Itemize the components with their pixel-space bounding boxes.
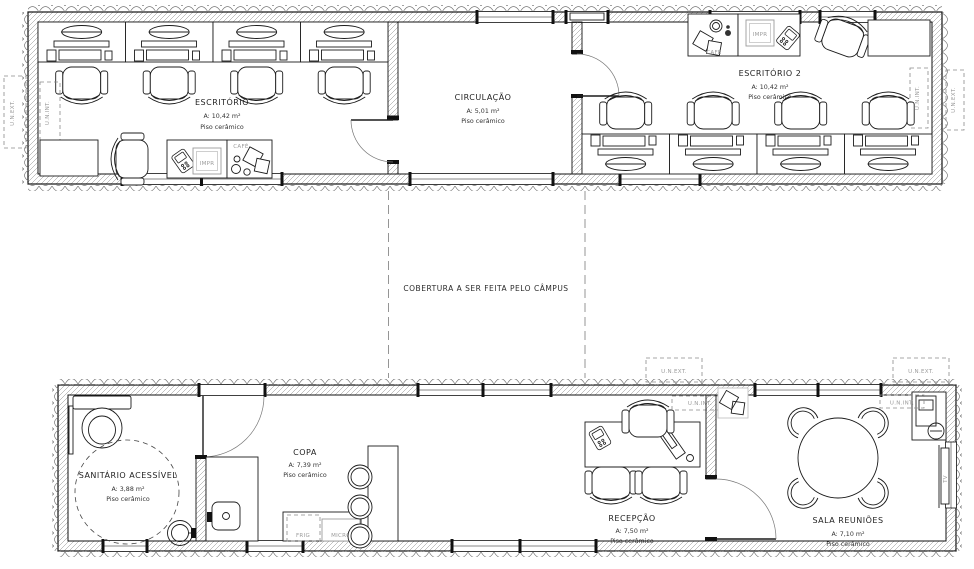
guest-chair bbox=[635, 467, 687, 504]
printer-table: IMPR bbox=[738, 14, 800, 56]
floor-plan-canvas: U.N.EXT. U.N.INT. IMPR CAFÉ ESCRITÓRIO A… bbox=[0, 0, 974, 569]
corrugation-bottom bbox=[58, 551, 956, 557]
copa-cabinet bbox=[206, 457, 258, 541]
wall-art bbox=[718, 388, 748, 418]
room-name: RECEPÇÃO bbox=[608, 513, 655, 523]
room-area: A: 10,42 m² bbox=[751, 84, 788, 91]
corrugation-bottom bbox=[28, 185, 942, 191]
fridge-label: FRIG bbox=[296, 533, 310, 539]
room-floor: Piso cerâmico bbox=[283, 471, 327, 479]
corrugation-top bbox=[28, 5, 942, 11]
window bbox=[417, 383, 553, 397]
entry-door-top bbox=[565, 10, 610, 24]
building-top: U.N.EXT. U.N.INT. IMPR CAFÉ ESCRITÓRIO A… bbox=[4, 5, 964, 191]
bar-stool bbox=[348, 495, 372, 519]
room-name: CIRCULAÇÃO bbox=[455, 92, 512, 102]
office-chair bbox=[111, 133, 148, 185]
cafe-table: CAFÉ bbox=[688, 14, 738, 56]
room-area: A: 7,10 m² bbox=[831, 531, 864, 538]
printer-label: IMPR bbox=[200, 161, 215, 167]
cover-note: COBERTURA A SER FEITA PELO CÂMPUS bbox=[403, 284, 568, 293]
equipment-desk bbox=[912, 392, 946, 440]
window bbox=[409, 172, 555, 186]
ac-outdoor-label: U.N.EXT. bbox=[661, 369, 687, 375]
building-bottom: U.N.EXT. U.N.EXT. bbox=[52, 358, 962, 557]
room-floor: Piso cerâmico bbox=[826, 540, 870, 548]
side-table bbox=[40, 140, 98, 176]
side-table bbox=[868, 20, 930, 56]
room-name: SALA REUNIÕES bbox=[812, 514, 883, 525]
grab-bar bbox=[69, 406, 73, 454]
bar-stool bbox=[348, 465, 372, 489]
office-chair bbox=[622, 400, 674, 437]
window bbox=[754, 383, 883, 397]
site-connector: COBERTURA A SER FEITA PELO CÂMPUS bbox=[389, 191, 586, 378]
guest-chair bbox=[585, 467, 637, 504]
room-name: SANITÁRIO ACESSÍVEL bbox=[79, 469, 178, 480]
room-floor: Piso cerâmico bbox=[461, 117, 505, 125]
cafe-label: CAFÉ bbox=[706, 48, 722, 56]
ac-outdoor-label: U.N.EXT. bbox=[951, 87, 957, 113]
window bbox=[451, 539, 598, 553]
bar-stool bbox=[348, 524, 372, 548]
corrugation-right bbox=[942, 12, 948, 184]
ac-outdoor-label: U.N.EXT. bbox=[908, 369, 934, 375]
room-area: A: 7,39 m² bbox=[288, 462, 321, 469]
room-name: COPA bbox=[293, 448, 317, 457]
floor-plan-drawing: U.N.EXT. U.N.INT. IMPR CAFÉ ESCRITÓRIO A… bbox=[0, 0, 974, 569]
round-meeting-table bbox=[798, 418, 878, 498]
room-area: A: 3,88 m² bbox=[111, 486, 144, 493]
ac-outdoor-label: U.N.EXT. bbox=[10, 100, 16, 126]
cafe-label: CAFÉ bbox=[233, 142, 249, 150]
ac-indoor-label: U.N.INT. bbox=[890, 401, 914, 407]
ac-indoor-label: U.N.INT. bbox=[45, 101, 51, 125]
washbasin bbox=[212, 502, 240, 530]
room-area: A: 5,01 m² bbox=[466, 108, 499, 115]
room-area: A: 7,50 m² bbox=[615, 528, 648, 535]
room-name: ESCRITÓRIO 2 bbox=[739, 67, 802, 78]
room-area: A: 10,42 m² bbox=[203, 113, 240, 120]
corrugation-left bbox=[52, 385, 58, 551]
printer-label: IMPR bbox=[753, 32, 768, 38]
bar-counter bbox=[368, 446, 398, 541]
room-floor: Piso cerâmico bbox=[106, 495, 150, 503]
room-floor: Piso cerâmico bbox=[200, 123, 244, 131]
corrugation-right bbox=[956, 385, 962, 551]
cafe-table: CAFÉ bbox=[227, 140, 272, 178]
printer-table: IMPR bbox=[167, 140, 227, 178]
partition-sanitario bbox=[195, 455, 207, 541]
room-name: ESCRITÓRIO bbox=[195, 96, 249, 107]
tv-label: TV bbox=[943, 475, 949, 484]
window bbox=[102, 539, 149, 553]
room-floor: Piso cerâmico bbox=[610, 537, 654, 545]
corrugation-left bbox=[22, 12, 28, 184]
ac-indoor-label: U.N.INT. bbox=[915, 86, 921, 110]
window bbox=[476, 10, 555, 24]
